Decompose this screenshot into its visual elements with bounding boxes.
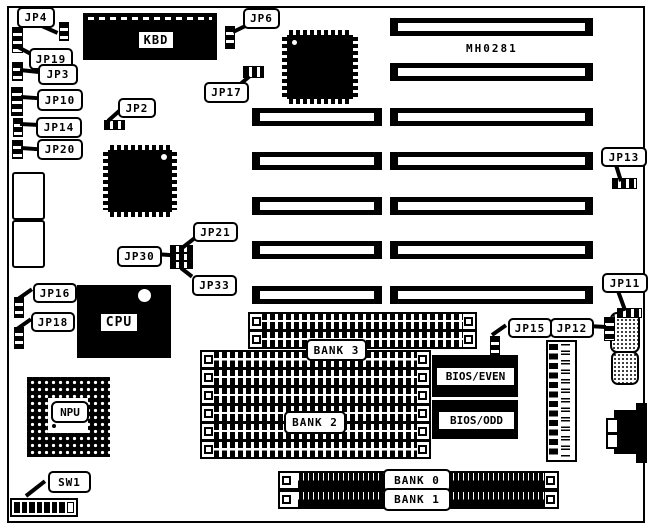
jp14-label: JP14: [36, 117, 82, 138]
cpu-pin1-dot: [138, 289, 151, 302]
jp10-jumper: [11, 87, 23, 116]
jp12-jumper: [604, 317, 615, 341]
qfp2-pins-bottom: [110, 212, 170, 217]
npu-label: NPU: [51, 401, 89, 423]
isa-slot: [390, 197, 593, 215]
cpu-chip-label: CPU: [100, 313, 138, 332]
jp4-jumper: [59, 22, 69, 41]
qfp2-pins-right: [172, 152, 177, 210]
jp18-jumper: [14, 327, 24, 349]
isa-slot: [390, 286, 593, 304]
jp16-label: JP16: [33, 283, 77, 303]
din-pin-box-2: [606, 433, 619, 449]
jp13-label: JP13: [601, 147, 647, 167]
jp13-jumper: [612, 178, 637, 189]
jp21-label: JP21: [193, 222, 238, 242]
part-number-label: MH0281: [466, 42, 518, 55]
kbd-chip-notch-line: [88, 17, 212, 20]
jp18-label: JP18: [31, 312, 75, 332]
isa-slot: [390, 63, 593, 81]
jp30-label: JP30: [117, 246, 162, 267]
isa-slot-extension: [252, 197, 382, 215]
power-connector: [546, 340, 577, 462]
bank1-label: BANK 1: [383, 488, 451, 511]
isa-slot: [390, 241, 593, 259]
qfp2-pin1-dot: [161, 154, 167, 160]
bank3-label: BANK 3: [306, 339, 367, 361]
isa-slot: [390, 108, 593, 126]
motherboard-diagram: MH0281 KBD CPU NPU BIOS/EVEN BIOS/ODD: [0, 0, 651, 529]
jp3-label: JP3: [38, 64, 78, 85]
jp14-jumper: [13, 118, 23, 137]
isa-slot: [390, 18, 593, 36]
connector-footprint-bottom: [611, 351, 639, 385]
sw1-label: SW1: [48, 471, 91, 493]
bios-even-label: BIOS/EVEN: [436, 367, 515, 386]
din-keyboard-connector-flange: [636, 403, 647, 463]
jp17-label: JP17: [204, 82, 249, 103]
qfp-chip-top: [287, 35, 353, 99]
din-pin-box-1: [606, 418, 619, 434]
jp11-jumper: [617, 308, 642, 318]
jp21-jp30-jp33-jumper-block-row2: [170, 253, 193, 261]
jp15-label: JP15: [508, 318, 552, 338]
callout-tail-jp14: [20, 122, 37, 127]
jp10-label: JP10: [37, 89, 83, 111]
jp15-jumper: [490, 336, 500, 357]
isa-slot-extension: [252, 241, 382, 259]
jp12-label: JP12: [550, 318, 594, 338]
jp11-label: JP11: [602, 273, 648, 293]
sw1-dip-switch: [10, 498, 78, 517]
bios-odd-label: BIOS/ODD: [438, 411, 515, 430]
jp2-jumper: [104, 120, 125, 130]
simm-socket-bank2: [200, 386, 431, 405]
component-left-1: [12, 172, 45, 220]
qfp1-pins-right: [353, 37, 358, 97]
simm-socket-bank2: [200, 440, 431, 459]
component-left-2: [12, 220, 45, 268]
jp6-label: JP6: [243, 8, 280, 29]
simm-socket-bank2: [200, 368, 431, 387]
simm-socket-bank3: [248, 312, 477, 331]
bank2-label: BANK 2: [284, 411, 346, 434]
qfp1-pin1-dot: [292, 40, 297, 45]
jp2-label: JP2: [118, 98, 156, 118]
kbd-chip-label: KBD: [138, 31, 174, 49]
qfp1-pins-bottom: [289, 99, 351, 104]
isa-slot-extension: [252, 108, 382, 126]
jp4-label: JP4: [17, 7, 55, 28]
jp20-label: JP20: [37, 139, 83, 160]
jp33-label: JP33: [192, 275, 237, 296]
isa-slot-extension: [252, 152, 382, 170]
isa-slot-extension: [252, 286, 382, 304]
isa-slot: [390, 152, 593, 170]
npu-pin1-dot: [52, 424, 56, 428]
